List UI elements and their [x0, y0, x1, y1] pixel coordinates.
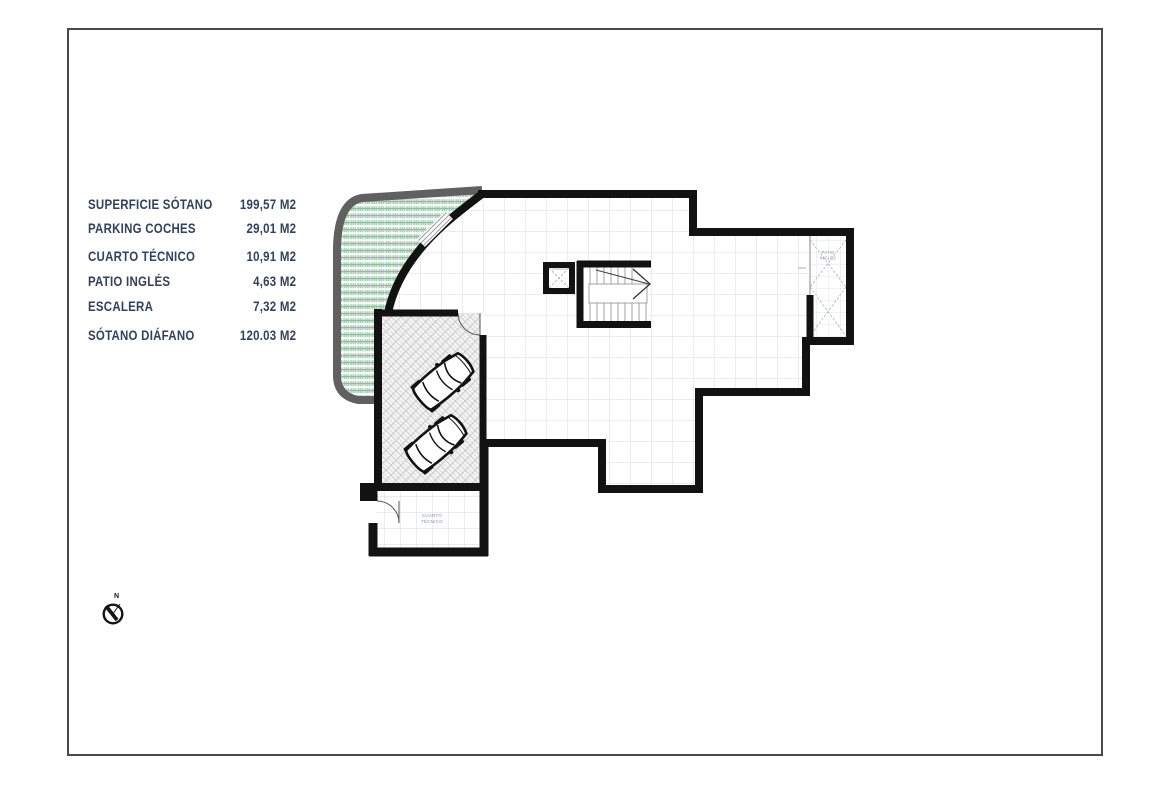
compass-north-label: N [114, 593, 119, 600]
technical-room-label: TÉCNICO [421, 518, 443, 524]
technical-room-label: CUARTO [422, 513, 443, 518]
patio-room-label: INGLÉS [820, 256, 837, 261]
elevator-label: ASCENSOR [551, 267, 567, 271]
patio-room-label: PATIO [822, 250, 835, 255]
compass-needle [106, 606, 117, 620]
floor-plan: PATIO INGLÉS CUARTO TÉCNICO ASCENSOR N [0, 0, 1170, 785]
north-compass: N [104, 593, 123, 623]
